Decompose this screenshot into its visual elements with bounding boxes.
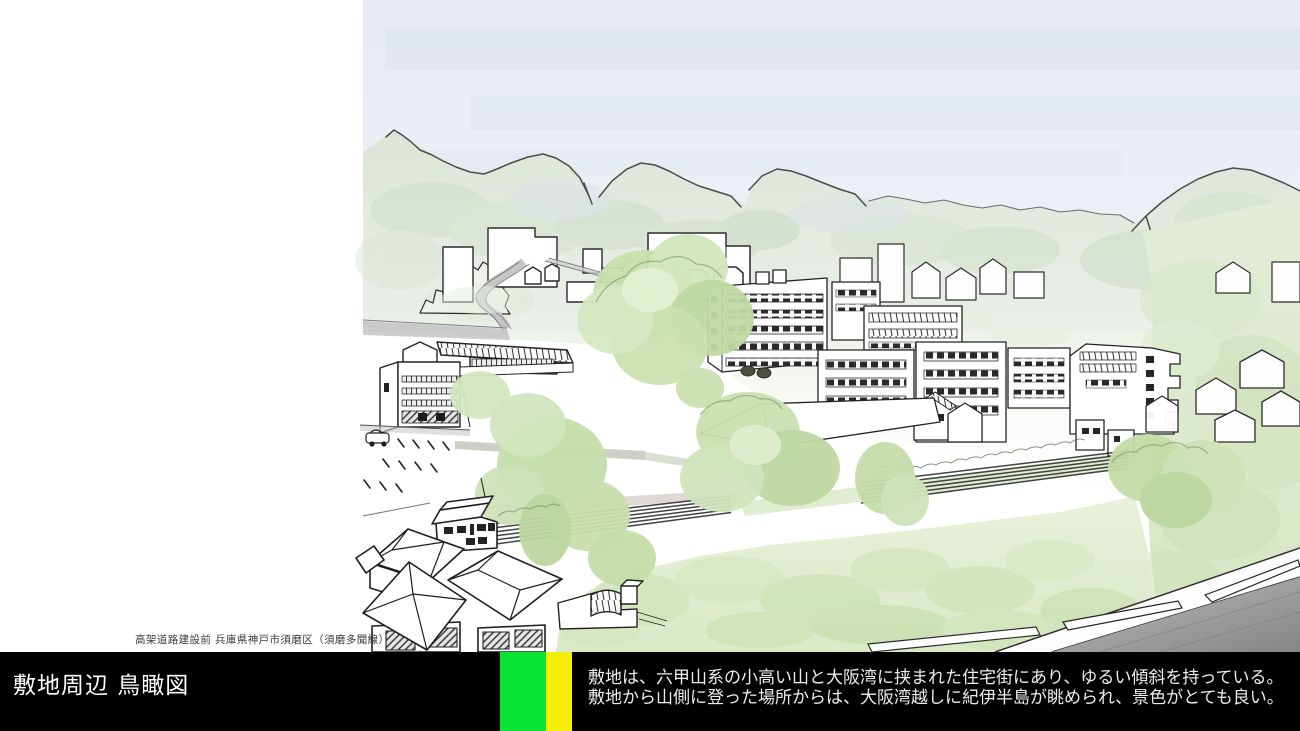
accent-stripe-yellow <box>546 652 572 731</box>
description-line-2: 敷地から山側に登った場所からは、大阪湾越しに紀伊半島が眺められ、景色がとても良い… <box>588 689 1284 709</box>
parking-lot <box>364 430 449 492</box>
car-icon <box>366 433 389 443</box>
slide-title: 敷地周辺 鳥瞰図 <box>13 666 189 700</box>
slide: 高架道路建設前 兵庫県神戸市須磨区（須磨多聞線） 敷地周辺 鳥瞰図 敷地は、六甲… <box>0 0 1300 731</box>
description-line-1: 敷地は、六甲山系の小高い山と大阪湾に挟まれた住宅街にあり、ゆるい傾斜を持っている… <box>588 669 1284 689</box>
site-description: 敷地は、六甲山系の小高い山と大阪湾に挟まれた住宅街にあり、ゆるい傾斜を持っている… <box>588 669 1284 708</box>
accent-stripe-green <box>500 652 546 731</box>
location-caption: 高架道路建設前 兵庫県神戸市須磨区（須磨多聞線） <box>135 632 389 647</box>
birdseye-illustration <box>0 0 1300 652</box>
